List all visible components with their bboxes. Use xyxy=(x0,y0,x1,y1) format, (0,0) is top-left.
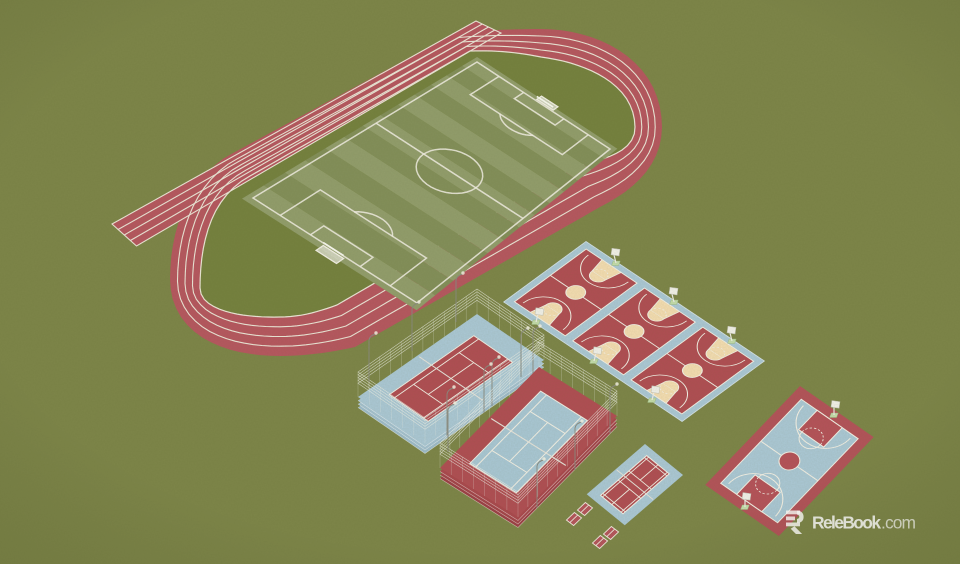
svg-text:ReleBook: ReleBook xyxy=(812,513,881,533)
svg-text:.com: .com xyxy=(881,513,916,533)
